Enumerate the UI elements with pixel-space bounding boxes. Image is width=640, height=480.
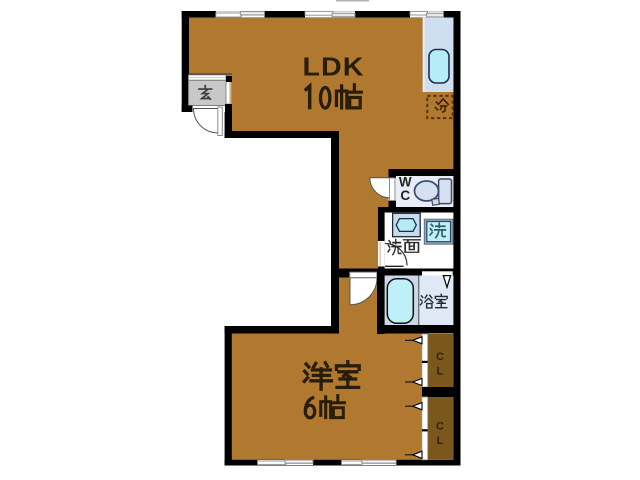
svg-text:L: L (437, 365, 444, 377)
svg-text:LDK: LDK (303, 52, 365, 82)
svg-text:C: C (436, 351, 444, 363)
svg-text:L: L (437, 435, 444, 447)
svg-text:C: C (436, 421, 444, 433)
svg-text:C: C (400, 188, 410, 203)
